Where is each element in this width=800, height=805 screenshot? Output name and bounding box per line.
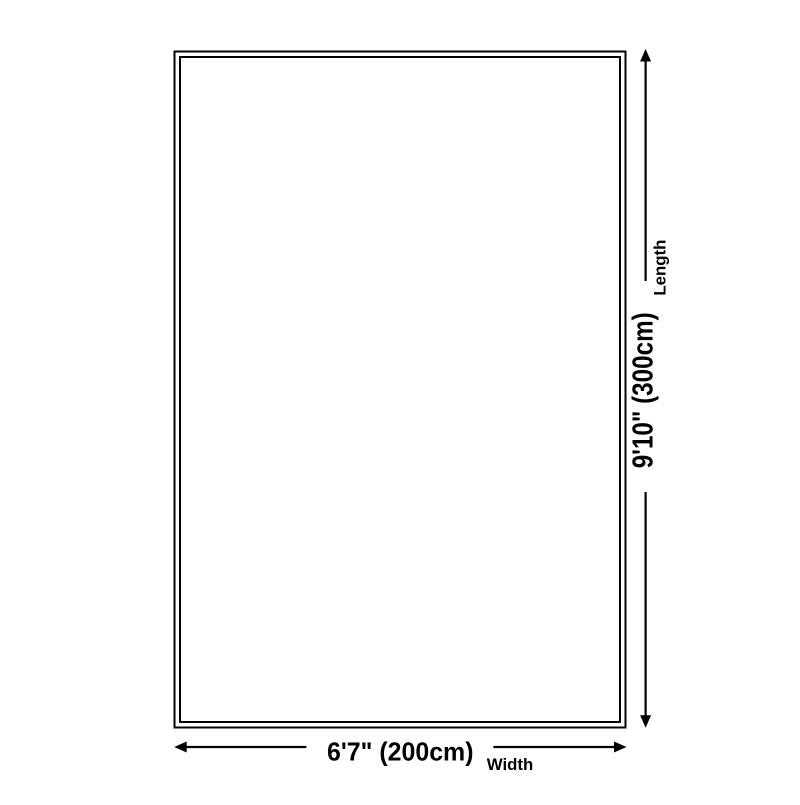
- svg-text:Width: Width: [487, 755, 533, 774]
- svg-text:9'10" (300cm): 9'10" (300cm): [628, 312, 660, 468]
- svg-text:Length: Length: [651, 240, 670, 296]
- svg-text:6'7" (200cm): 6'7" (200cm): [327, 736, 474, 766]
